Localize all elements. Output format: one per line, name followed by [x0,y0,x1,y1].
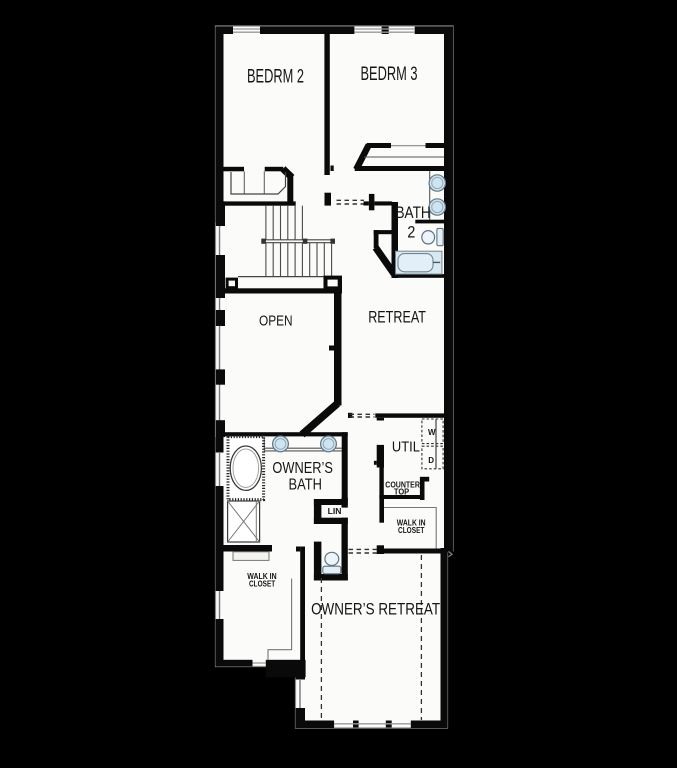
svg-text:TOP: TOP [394,488,409,497]
svg-text:CLOSET: CLOSET [398,526,424,535]
svg-text:UTIL: UTIL [392,440,420,456]
svg-text:D: D [428,456,434,465]
svg-text:OWNER’S: OWNER’S [272,460,333,477]
svg-text:OWNER’S RETREAT: OWNER’S RETREAT [311,600,440,619]
svg-text:CLOSET: CLOSET [249,580,275,589]
svg-text:BEDRM 3: BEDRM 3 [361,63,418,85]
svg-text:BATH: BATH [396,204,431,222]
svg-text:2: 2 [407,224,415,242]
svg-text:RETREAT: RETREAT [368,309,426,327]
svg-text:LIN: LIN [328,506,342,516]
svg-text:BATH: BATH [289,477,322,494]
svg-text:OPEN: OPEN [259,312,293,329]
svg-text:W: W [428,428,436,437]
svg-text:BEDRM 2: BEDRM 2 [247,65,304,87]
